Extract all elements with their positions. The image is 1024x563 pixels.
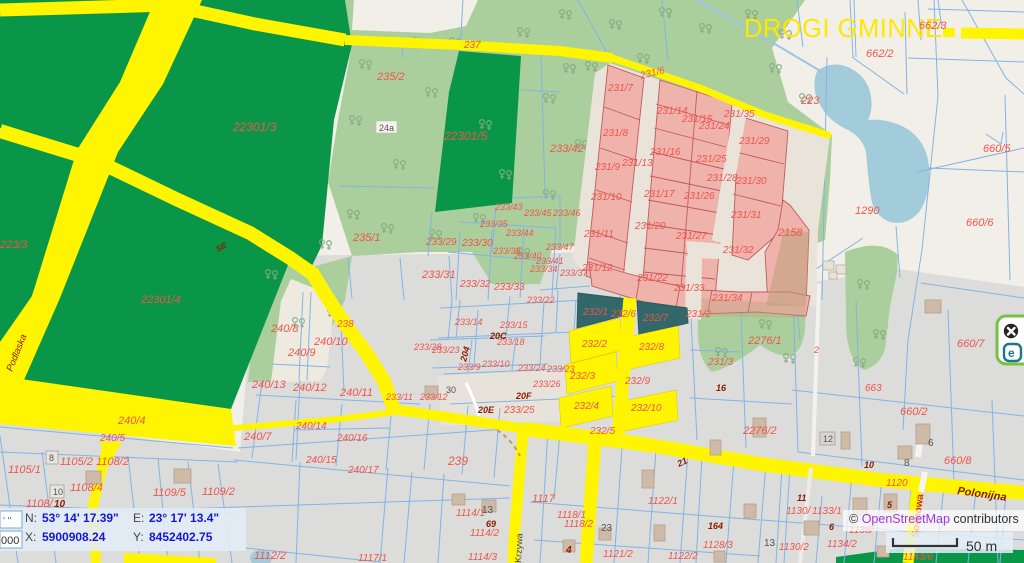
svg-text:1118/2: 1118/2 — [564, 519, 594, 530]
svg-text:DROGI GMINNE: DROGI GMINNE — [744, 15, 943, 43]
svg-text:660/6: 660/6 — [966, 217, 994, 229]
svg-text:1122/2: 1122/2 — [668, 551, 698, 562]
svg-text:1134/2: 1134/2 — [827, 539, 857, 550]
svg-text:8452402.75: 8452402.75 — [149, 530, 213, 544]
svg-text:233/14: 233/14 — [454, 317, 483, 327]
svg-text:23: 23 — [601, 523, 613, 534]
svg-text:1130/: 1130/ — [786, 506, 812, 517]
svg-text:232/1: 232/1 — [582, 307, 608, 318]
svg-text:8: 8 — [904, 458, 910, 469]
svg-text:231/26: 231/26 — [683, 191, 715, 202]
svg-text:231/11: 231/11 — [583, 229, 614, 240]
svg-text:662/2: 662/2 — [866, 48, 894, 60]
svg-text:235/1: 235/1 — [352, 232, 381, 244]
svg-text:235/2: 235/2 — [376, 71, 405, 83]
svg-text:231/30: 231/30 — [735, 176, 767, 187]
svg-text:233/11: 233/11 — [385, 392, 413, 402]
svg-text:4: 4 — [565, 545, 572, 556]
svg-text:2158: 2158 — [777, 227, 803, 239]
svg-text:240/11: 240/11 — [339, 387, 373, 399]
svg-text:233/34: 233/34 — [529, 264, 558, 274]
svg-text:232/9: 232/9 — [624, 376, 650, 387]
svg-text:233/26: 233/26 — [532, 379, 561, 389]
svg-text:1109/2: 1109/2 — [202, 486, 235, 498]
svg-text:231/13: 231/13 — [621, 158, 653, 169]
svg-text:53° 14' 17.39": 53° 14' 17.39" — [42, 511, 119, 525]
svg-text:231/2: 231/2 — [685, 309, 711, 320]
svg-text:231/16: 231/16 — [649, 147, 681, 158]
svg-text:11: 11 — [797, 493, 806, 503]
svg-text:2276/2: 2276/2 — [742, 425, 777, 437]
svg-text:N:: N: — [25, 511, 37, 525]
svg-text:233/45: 233/45 — [523, 208, 553, 218]
svg-text:232/4: 232/4 — [573, 401, 599, 412]
svg-text:e: e — [1008, 346, 1015, 360]
svg-text:1117/1: 1117/1 — [358, 553, 387, 563]
svg-text:231/29: 231/29 — [738, 136, 770, 147]
svg-text:12: 12 — [823, 434, 833, 444]
svg-text:233/33: 233/33 — [493, 282, 525, 293]
svg-text:232/5: 232/5 — [589, 426, 615, 437]
svg-text:13: 13 — [764, 538, 776, 549]
svg-text:239: 239 — [447, 454, 468, 468]
svg-text:1133/1: 1133/1 — [812, 506, 842, 517]
svg-text:233/31: 233/31 — [421, 269, 456, 281]
svg-text:000: 000 — [1, 535, 19, 547]
svg-text:231/3: 231/3 — [707, 357, 733, 368]
svg-text:1120: 1120 — [886, 478, 908, 489]
svg-text:© OpenStreetMap contributors: © OpenStreetMap contributors — [849, 512, 1019, 526]
svg-text:233/12: 233/12 — [419, 392, 448, 402]
svg-text:5900908.24: 5900908.24 — [42, 530, 106, 544]
svg-text:1290: 1290 — [855, 205, 880, 217]
svg-text:50 m: 50 m — [966, 538, 997, 554]
svg-text:240/5: 240/5 — [99, 433, 125, 444]
svg-text:233/29: 233/29 — [425, 237, 457, 248]
svg-text:1122/1: 1122/1 — [648, 496, 678, 507]
svg-text:1143/6: 1143/6 — [903, 552, 933, 563]
svg-text:22301/3: 22301/3 — [232, 120, 277, 134]
svg-text:240/15: 240/15 — [305, 455, 337, 466]
svg-text:13: 13 — [482, 505, 494, 516]
svg-text:233/23: 233/23 — [431, 345, 460, 355]
svg-text:231/10: 231/10 — [590, 192, 622, 203]
svg-text:240/7: 240/7 — [243, 431, 272, 443]
svg-text:1114/1: 1114/1 — [456, 508, 485, 519]
svg-text:1108/2: 1108/2 — [96, 456, 129, 468]
svg-text:231/24: 231/24 — [698, 121, 730, 132]
svg-text:233/30: 233/30 — [461, 238, 493, 249]
svg-text:223: 223 — [800, 95, 820, 107]
svg-text:E:: E: — [133, 511, 144, 525]
svg-text:6: 6 — [928, 438, 934, 449]
svg-text:233/44: 233/44 — [505, 228, 534, 238]
svg-text:233/46: 233/46 — [552, 208, 581, 218]
svg-text:240/12: 240/12 — [292, 382, 327, 394]
svg-text:233/22: 233/22 — [526, 295, 555, 305]
svg-text:23° 17' 13.4": 23° 17' 13.4" — [149, 511, 219, 525]
svg-text:231/35: 231/35 — [723, 109, 755, 120]
svg-text:20E: 20E — [477, 405, 495, 415]
svg-text:1105/1: 1105/1 — [8, 464, 41, 476]
svg-text:233/42: 233/42 — [549, 143, 584, 155]
svg-text:233/10: 233/10 — [481, 359, 510, 369]
svg-text:231/22: 231/22 — [636, 273, 668, 284]
svg-text:231/33: 231/33 — [673, 283, 705, 294]
svg-text:231/7: 231/7 — [607, 83, 633, 94]
svg-text:10: 10 — [53, 487, 63, 497]
svg-text:240/8: 240/8 — [270, 323, 299, 335]
svg-text:231/9: 231/9 — [594, 162, 620, 173]
svg-text:231/25: 231/25 — [695, 154, 727, 165]
svg-text:663: 663 — [865, 383, 882, 394]
svg-text:240/14: 240/14 — [295, 421, 327, 432]
svg-text:240/4: 240/4 — [117, 415, 146, 427]
svg-text:231/32: 231/32 — [722, 245, 754, 256]
svg-text:232/2: 232/2 — [581, 339, 607, 350]
svg-text:223/3: 223/3 — [0, 239, 28, 251]
svg-text:22301/5: 22301/5 — [443, 129, 488, 143]
svg-text:240/9: 240/9 — [287, 347, 316, 359]
svg-text:232/7: 232/7 — [642, 313, 668, 324]
svg-text:Y:: Y: — [133, 530, 144, 544]
svg-text:1128/3: 1128/3 — [703, 540, 733, 551]
svg-text:231/27: 231/27 — [675, 231, 707, 242]
svg-text:1108/4: 1108/4 — [70, 482, 103, 494]
svg-text:2276/1: 2276/1 — [747, 335, 782, 347]
svg-text:237: 237 — [463, 40, 481, 51]
svg-text:232/8: 232/8 — [638, 342, 664, 353]
svg-text:233/32: 233/32 — [459, 279, 491, 290]
svg-text:240/17: 240/17 — [347, 465, 379, 476]
svg-text:233/35: 233/35 — [479, 219, 509, 229]
svg-text:30: 30 — [446, 385, 456, 395]
svg-text:' ": ' " — [3, 516, 12, 527]
svg-text:231/28: 231/28 — [706, 173, 738, 184]
svg-text:1109/5: 1109/5 — [153, 487, 187, 499]
svg-text:8: 8 — [49, 453, 54, 463]
svg-text:233/43: 233/43 — [494, 202, 523, 212]
svg-text:2: 2 — [813, 345, 819, 355]
svg-text:1117: 1117 — [532, 493, 556, 505]
svg-text:1114/3: 1114/3 — [468, 552, 498, 563]
svg-text:240/10: 240/10 — [313, 336, 349, 348]
svg-text:233/25: 233/25 — [503, 405, 535, 416]
svg-text:69: 69 — [486, 519, 496, 529]
svg-text:231/12: 231/12 — [581, 263, 613, 274]
svg-text:233/24: 233/24 — [517, 363, 546, 373]
svg-text:16: 16 — [716, 383, 727, 393]
svg-text:660/7: 660/7 — [957, 338, 985, 350]
svg-text:660/5: 660/5 — [983, 143, 1011, 155]
svg-text:660/2: 660/2 — [900, 406, 928, 418]
svg-text:24a: 24a — [379, 123, 394, 133]
svg-text:232/3: 232/3 — [569, 371, 595, 382]
svg-text:231/20: 231/20 — [634, 221, 666, 232]
svg-text:1112/2: 1112/2 — [254, 550, 286, 562]
svg-text:231/17: 231/17 — [643, 189, 675, 200]
svg-text:1114/2: 1114/2 — [470, 528, 500, 539]
svg-text:1121/2: 1121/2 — [603, 549, 633, 560]
svg-text:240/13: 240/13 — [251, 379, 287, 391]
svg-text:22301/4: 22301/4 — [140, 294, 181, 306]
svg-text:238: 238 — [336, 319, 354, 330]
svg-text:10: 10 — [864, 460, 874, 470]
svg-text:233/47: 233/47 — [545, 242, 575, 252]
svg-text:231/34: 231/34 — [711, 293, 743, 304]
svg-text:231/31: 231/31 — [730, 210, 762, 221]
svg-text:20F: 20F — [515, 391, 532, 401]
svg-text:1105/2: 1105/2 — [60, 456, 93, 468]
svg-text:233/15: 233/15 — [499, 320, 529, 330]
svg-text:233/9: 233/9 — [457, 362, 481, 372]
svg-text:232/6: 232/6 — [610, 309, 636, 320]
svg-text:240/16: 240/16 — [336, 433, 368, 444]
svg-text:Krzywa: Krzywa — [513, 533, 525, 563]
svg-text:660/8: 660/8 — [944, 455, 972, 467]
svg-text:1130/2: 1130/2 — [779, 542, 809, 553]
svg-text:X:: X: — [25, 530, 36, 544]
svg-text:164: 164 — [708, 521, 723, 531]
svg-text:231/8: 231/8 — [602, 128, 628, 139]
svg-text:662/3: 662/3 — [919, 20, 947, 32]
svg-text:20C: 20C — [489, 331, 507, 341]
svg-text:232/10: 232/10 — [630, 403, 662, 414]
